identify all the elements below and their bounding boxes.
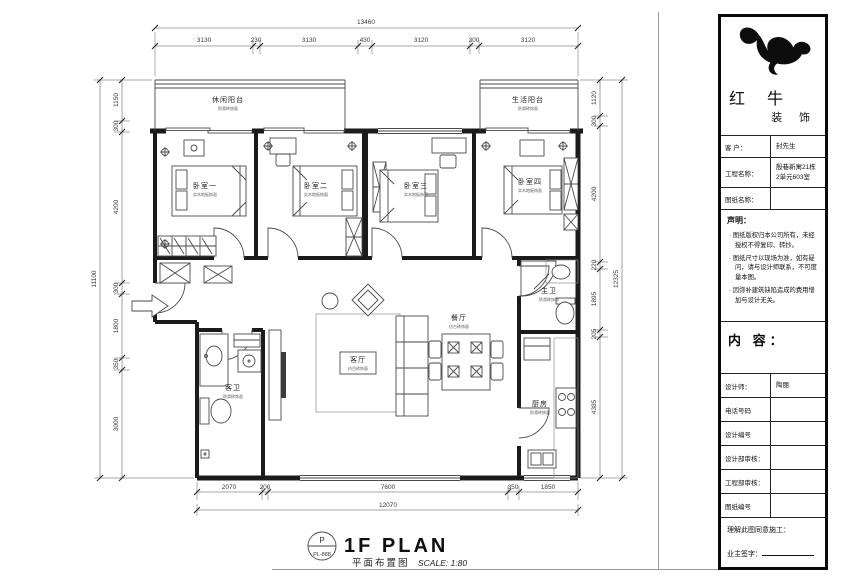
plan-title: P PL-888 1F PLAN 平面布置图 SCALE: 1:80 bbox=[308, 532, 467, 569]
brand-name-line2: 装 饰 bbox=[771, 109, 825, 125]
dim-top-seg: 300 bbox=[469, 37, 480, 44]
drawing-sheet: 13460 3130 230 3130 430 3120 300 3120 11… bbox=[0, 0, 860, 580]
tv-cabinet bbox=[269, 330, 281, 420]
dimensions-top: 13460 3130 230 3130 430 3120 300 3120 bbox=[152, 19, 581, 76]
chair bbox=[429, 341, 441, 358]
stool bbox=[322, 293, 338, 309]
design-audit-label: 设计部审核： bbox=[721, 446, 771, 469]
room-bedroom4: 卧室四 bbox=[518, 177, 542, 186]
svg-text:实木地板饰面: 实木地板饰面 bbox=[304, 191, 328, 197]
room-bedroom1: 卧室一 bbox=[193, 181, 217, 190]
statement-title: 声明： bbox=[727, 215, 820, 226]
entry-arrow bbox=[132, 295, 168, 317]
chair bbox=[276, 154, 290, 166]
room-living: 客厅 bbox=[350, 355, 366, 364]
content-section: 内 容： bbox=[721, 322, 825, 374]
client-row: 客 户： 封先生 bbox=[721, 136, 825, 158]
design-audit-row: 设计部审核： bbox=[721, 446, 825, 470]
svg-text:350: 350 bbox=[113, 358, 120, 369]
chair bbox=[491, 341, 503, 358]
shelf bbox=[234, 334, 260, 347]
content-label: 内 容： bbox=[728, 333, 787, 348]
room-balcony-left: 休闲阳台 bbox=[212, 95, 244, 104]
designer-label: 设计师： bbox=[721, 374, 771, 397]
svg-text:防滑砖饰面: 防滑砖饰面 bbox=[530, 409, 550, 415]
statement-item: · 因弥补建筑缺陷造成的费用增加与设计无关。 bbox=[727, 286, 820, 306]
eng-audit-label: 工程部审核： bbox=[721, 470, 771, 493]
toilet bbox=[200, 398, 209, 424]
project-value-line1: 殷巷新寓21栋 bbox=[776, 164, 816, 171]
plan-subtitle: 平面布置图 bbox=[352, 557, 410, 569]
svg-text:仿古砖饰面: 仿古砖饰面 bbox=[348, 365, 368, 371]
desk bbox=[270, 138, 296, 154]
desk bbox=[432, 138, 466, 153]
dimensions-right: 1120 300 4200 220 1895 205 4385 12325 bbox=[580, 77, 628, 481]
svg-text:200: 200 bbox=[260, 484, 271, 491]
svg-text:1850: 1850 bbox=[541, 484, 556, 491]
svg-text:300: 300 bbox=[113, 120, 120, 131]
tv bbox=[281, 352, 286, 398]
signature-section: 理解此图同意施工： 业主签字： bbox=[721, 518, 825, 567]
phone-label: 电话号码 bbox=[721, 398, 771, 421]
project-value-line2: 2单元603室 bbox=[776, 174, 810, 181]
project-value: 殷巷新寓21栋 2单元603室 bbox=[771, 161, 818, 183]
dim-top-seg: 3130 bbox=[302, 37, 317, 44]
svg-text:1800: 1800 bbox=[113, 318, 120, 333]
floor-drain bbox=[201, 450, 209, 458]
title-block: 红 牛 装 饰 客 户： 封先生 工程名称： 殷巷新寓21栋 2单元603室 图… bbox=[718, 14, 828, 570]
svg-text:实木地板饰面: 实木地板饰面 bbox=[518, 187, 542, 193]
svg-text:300: 300 bbox=[113, 282, 120, 293]
vanity bbox=[200, 334, 228, 386]
chair bbox=[440, 155, 456, 168]
svg-text:3000: 3000 bbox=[113, 416, 120, 431]
project-label: 工程名称： bbox=[721, 158, 771, 187]
svg-text:205: 205 bbox=[591, 328, 598, 339]
chair bbox=[491, 363, 503, 380]
accent-chair bbox=[352, 284, 384, 316]
brand-name-line1: 红 牛 bbox=[721, 85, 792, 109]
drawing-name-value bbox=[771, 197, 778, 201]
dim-top-seg: 3130 bbox=[197, 37, 212, 44]
svg-text:1150: 1150 bbox=[113, 93, 120, 107]
svg-text:300: 300 bbox=[591, 115, 598, 126]
svg-text:4200: 4200 bbox=[591, 186, 598, 201]
nightstand bbox=[184, 140, 204, 156]
plan-title-text: 1F PLAN bbox=[344, 535, 448, 557]
designer-value: 陶丽 bbox=[771, 379, 791, 392]
brand-area: 红 牛 装 饰 bbox=[721, 17, 825, 136]
statement-item: · 图纸尺寸以现场为准，如有疑问，请与设计师联系，不可度量本图。 bbox=[727, 254, 820, 283]
svg-text:1120: 1120 bbox=[591, 91, 598, 105]
svg-text:防滑砖饰面: 防滑砖饰面 bbox=[518, 105, 538, 111]
svg-text:1895: 1895 bbox=[591, 291, 598, 306]
drawing-name-label: 图纸名称： bbox=[721, 188, 771, 209]
sink bbox=[552, 265, 570, 279]
design-no-value bbox=[771, 432, 778, 436]
svg-text:4200: 4200 bbox=[113, 199, 120, 214]
room-dining: 餐厅 bbox=[451, 313, 467, 322]
project-row: 工程名称： 殷巷新寓21栋 2单元603室 bbox=[721, 158, 825, 188]
statement-item: · 图纸版权归本公司所有，未经授权不得复印、转抄。 bbox=[727, 231, 820, 251]
design-no-row: 设计编号 bbox=[721, 422, 825, 446]
dim-right-total: 12325 bbox=[613, 270, 620, 288]
svg-text:仿古砖饰面: 仿古砖饰面 bbox=[449, 323, 469, 329]
svg-text:实木地板饰面: 实木地板饰面 bbox=[404, 191, 428, 197]
sheet-no-value bbox=[771, 504, 778, 508]
room-kitchen: 厨房 bbox=[532, 399, 548, 408]
dim-top-seg: 430 bbox=[360, 37, 371, 44]
dim-top-seg: 230 bbox=[251, 37, 262, 44]
sofa bbox=[396, 316, 428, 416]
svg-text:220: 220 bbox=[591, 259, 598, 270]
design-audit-value bbox=[771, 456, 778, 460]
eng-audit-row: 工程部审核： bbox=[721, 470, 825, 494]
svg-text:防滑砖饰面: 防滑砖饰面 bbox=[223, 393, 243, 399]
dim-top-total: 13460 bbox=[357, 19, 375, 26]
dimensions-bottom: 2070 200 7600 350 1850 12070 bbox=[194, 482, 581, 516]
title-badge-letter: P bbox=[319, 536, 324, 545]
room-bedroom3: 卧室三 bbox=[404, 181, 428, 190]
owner-sign-label: 业主签字： bbox=[727, 551, 762, 558]
statement-section: 声明： · 图纸版权归本公司所有，未经授权不得复印、转抄。 · 图纸尺寸以现场为… bbox=[721, 210, 825, 322]
svg-text:2070: 2070 bbox=[222, 484, 237, 491]
fridge bbox=[524, 338, 550, 360]
dim-top-seg: 3120 bbox=[414, 37, 429, 44]
drawing-name-row: 图纸名称： bbox=[721, 188, 825, 210]
design-no-label: 设计编号 bbox=[721, 422, 771, 445]
dim-bottom-total: 12070 bbox=[379, 502, 397, 509]
dim-top-seg: 3120 bbox=[521, 37, 536, 44]
washing-machine bbox=[238, 350, 261, 372]
room-bath-guest: 客卫 bbox=[225, 383, 241, 392]
client-value: 封先生 bbox=[771, 140, 798, 153]
phone-row: 电话号码 bbox=[721, 398, 825, 422]
svg-text:7600: 7600 bbox=[381, 484, 396, 491]
floor-plan: 13460 3130 230 3130 430 3120 300 3120 11… bbox=[0, 0, 700, 580]
sheet-border-vertical bbox=[658, 12, 659, 570]
room-bedroom2: 卧室二 bbox=[304, 181, 328, 190]
room-bath-master: 主卫 bbox=[541, 286, 557, 295]
plan-scale: SCALE: 1:80 bbox=[418, 558, 467, 568]
brand-logo bbox=[729, 17, 817, 83]
svg-text:实木地板饰面: 实木地板饰面 bbox=[193, 191, 217, 197]
designer-row: 设计师： 陶丽 bbox=[721, 374, 825, 398]
svg-text:4385: 4385 bbox=[591, 399, 598, 414]
phone-value bbox=[771, 408, 778, 412]
title-badge-number: PL-888 bbox=[313, 552, 331, 558]
confirm-text: 理解此图同意施工： bbox=[727, 525, 821, 535]
dim-left-total: 11100 bbox=[91, 270, 98, 287]
client-label: 客 户： bbox=[721, 136, 771, 157]
sheet-no-label: 图纸编号 bbox=[721, 494, 771, 517]
room-balcony-right: 生活阳台 bbox=[512, 95, 544, 104]
sheet-border-horizontal bbox=[272, 569, 718, 570]
nightstand bbox=[520, 140, 544, 156]
chair bbox=[429, 363, 441, 380]
svg-text:防滑砖饰面: 防滑砖饰面 bbox=[539, 296, 559, 302]
svg-text:防滑砖饰面: 防滑砖饰面 bbox=[218, 105, 238, 111]
sheet-no-row: 图纸编号 bbox=[721, 494, 825, 518]
eng-audit-value bbox=[771, 480, 778, 484]
owner-sign-line bbox=[762, 547, 814, 556]
svg-text:350: 350 bbox=[508, 484, 519, 491]
